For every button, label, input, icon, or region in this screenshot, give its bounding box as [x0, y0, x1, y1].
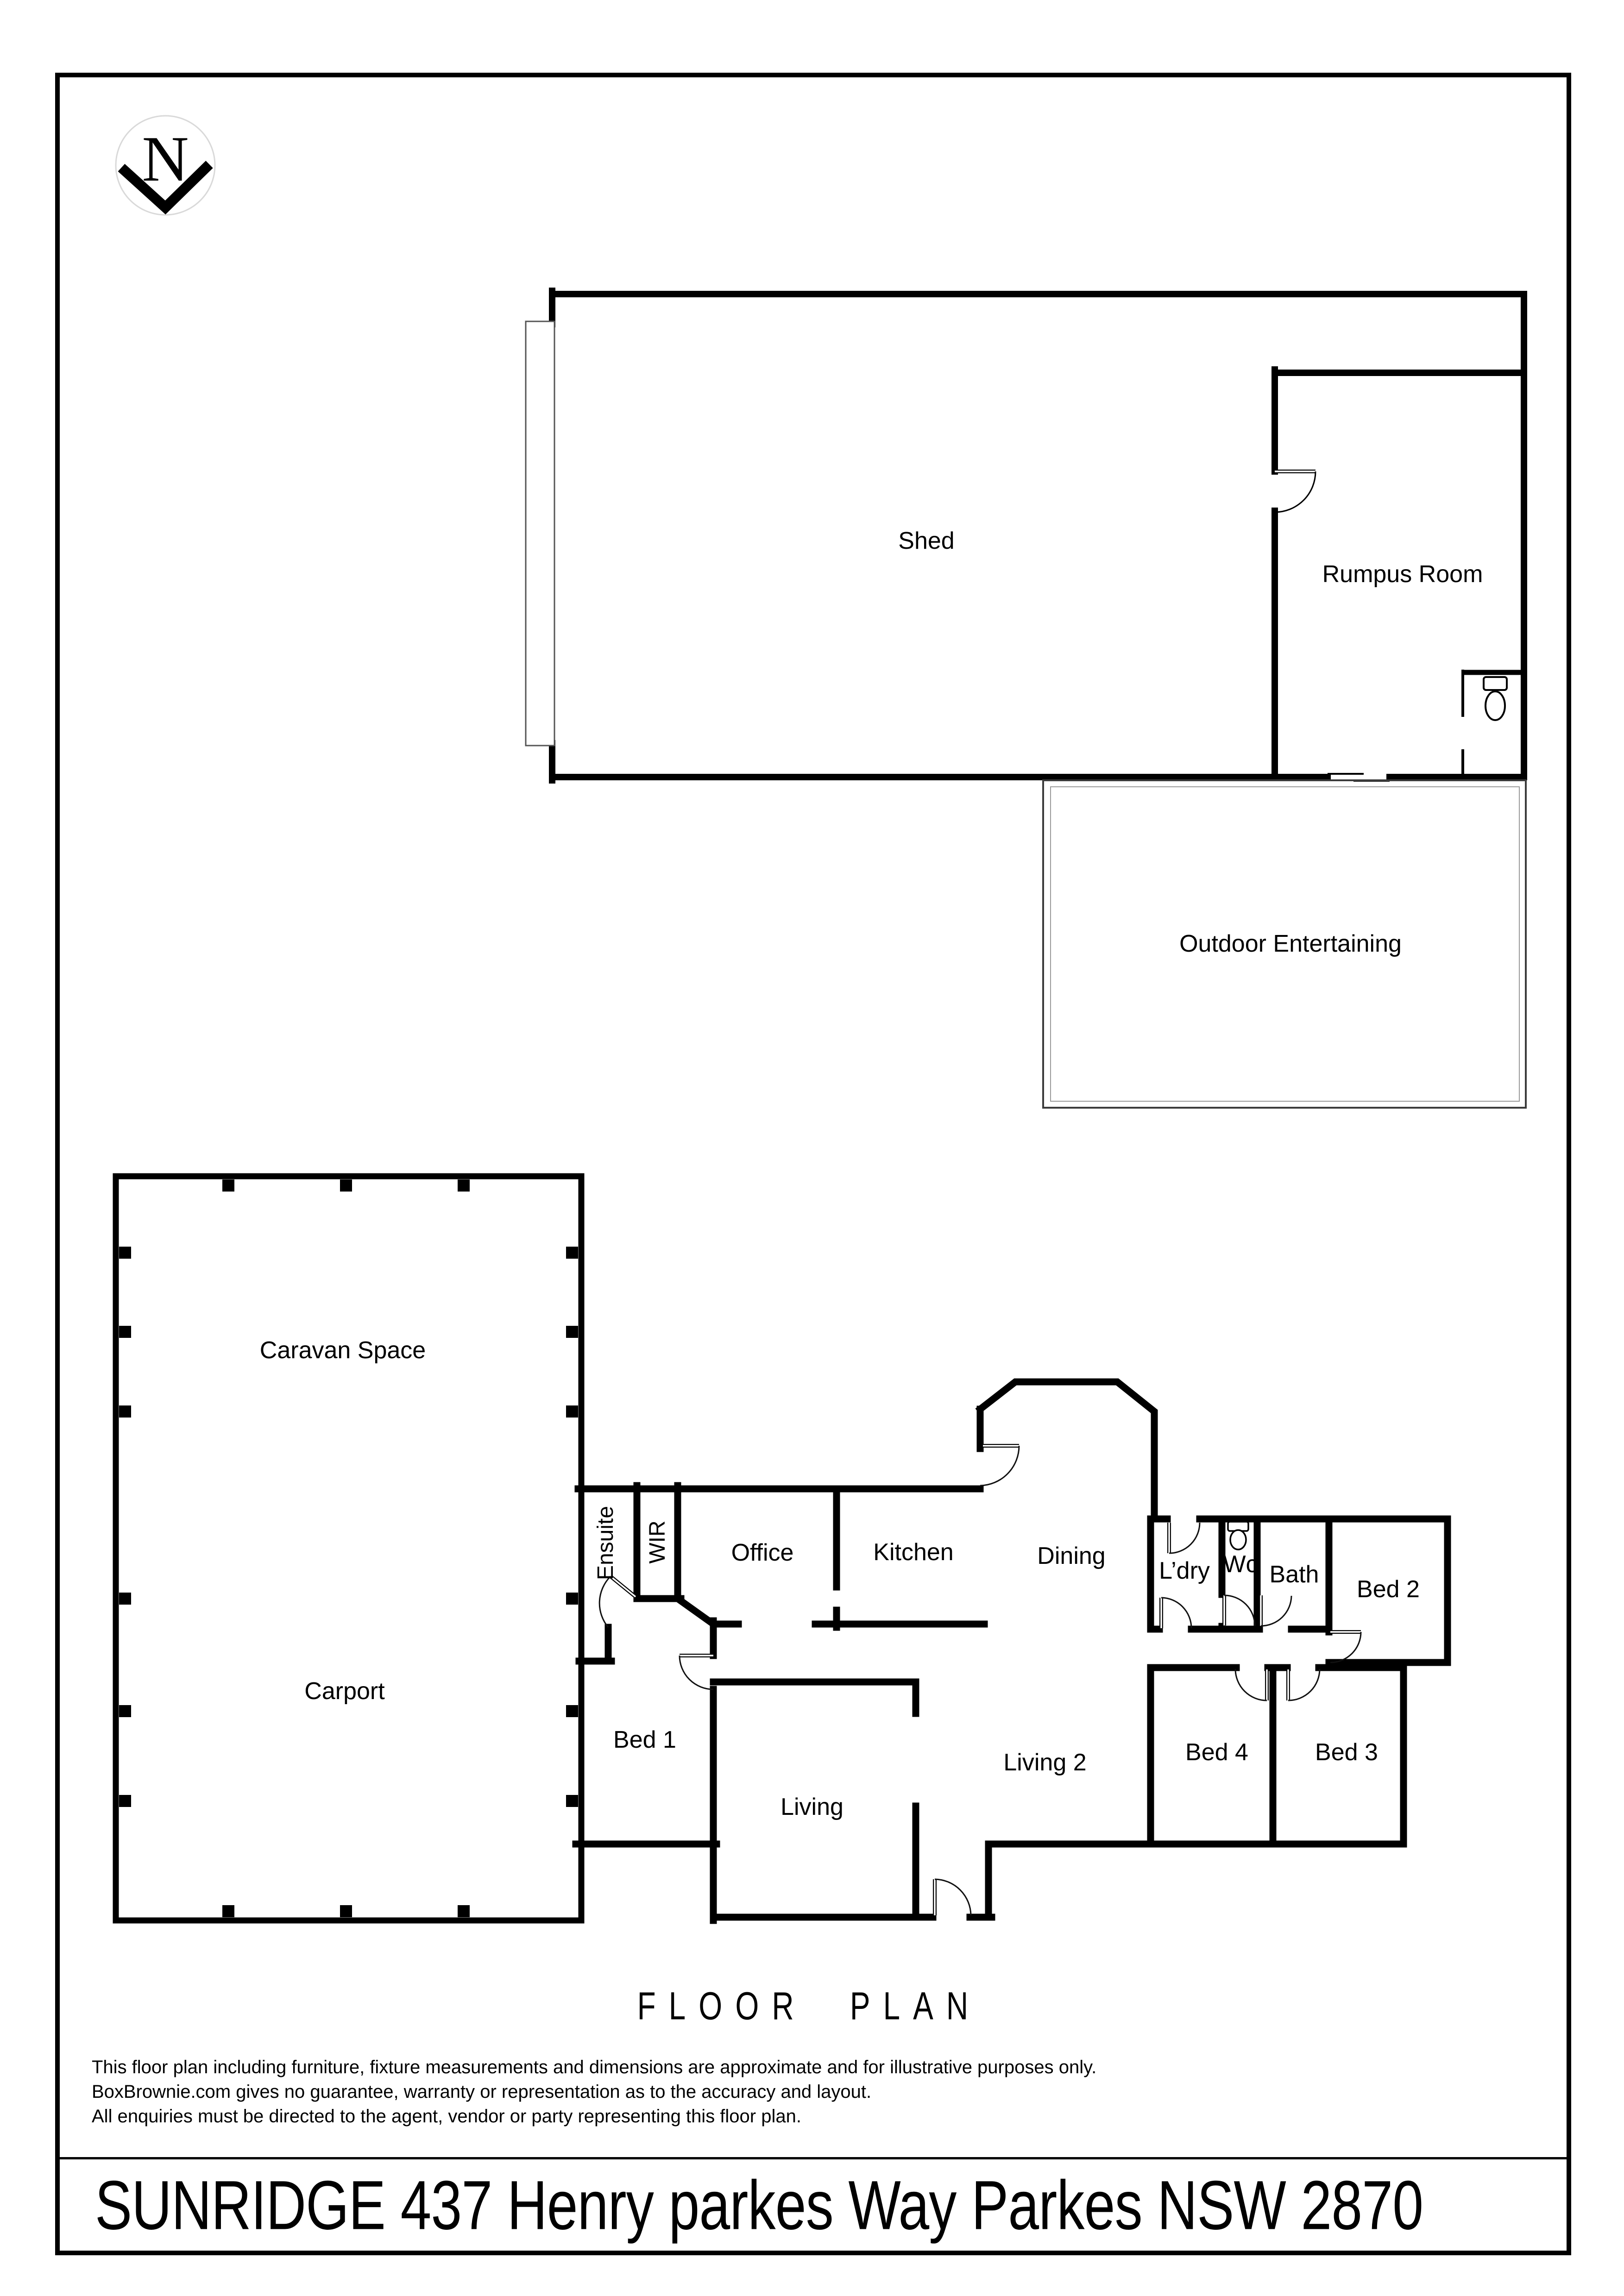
room-label-bed3: Bed 3 [1315, 1740, 1378, 1764]
room-label-caravan-space: Caravan Space [260, 1338, 426, 1362]
address-banner-text: SUNRIDGE 437 Henry parkes Way Parkes NSW… [95, 2165, 1423, 2246]
room-label-office: Office [731, 1541, 794, 1565]
address-banner-divider [55, 2157, 1571, 2159]
room-label-laundry: L’dry [1159, 1559, 1210, 1583]
toilet-icon [1228, 1522, 1248, 1549]
room-label-shed: Shed [898, 529, 954, 553]
floorplan-linework: N [0, 0, 1624, 2296]
room-label-bed4: Bed 4 [1185, 1740, 1248, 1764]
room-label-wc: Wc [1223, 1552, 1258, 1576]
room-label-living: Living [781, 1795, 843, 1819]
room-label-ensuite: Ensuite [595, 1506, 617, 1580]
room-label-wir: WIR [647, 1520, 669, 1563]
room-label-rumpus-room: Rumpus Room [1322, 562, 1483, 586]
carport-walls [116, 1176, 581, 1920]
house-walls [576, 1382, 1448, 1920]
disclaimer-text: This floor plan including furniture, fix… [92, 2055, 1096, 2129]
toilet-icon [1484, 677, 1507, 720]
room-label-living2: Living 2 [1003, 1750, 1086, 1775]
room-label-outdoor-entertaining: Outdoor Entertaining [1179, 932, 1402, 956]
room-label-bath: Bath [1270, 1562, 1319, 1587]
page-title: FLOOR PLAN [637, 1984, 982, 2029]
disclaimer-line-3: All enquiries must be directed to the ag… [92, 2104, 1096, 2129]
shed-roller-door [526, 321, 554, 746]
room-label-bed2: Bed 2 [1357, 1577, 1420, 1601]
room-label-carport: Carport [304, 1679, 384, 1703]
disclaimer-line-2: BoxBrownie.com gives no guarantee, warra… [92, 2080, 1096, 2104]
room-label-kitchen: Kitchen [873, 1540, 953, 1564]
room-label-bed1: Bed 1 [613, 1728, 676, 1752]
carport-posts [119, 1179, 578, 1917]
rumpus-door [1275, 471, 1316, 512]
north-letter: N [142, 123, 189, 195]
north-arrow-icon: N [116, 116, 215, 215]
shed-walls [552, 291, 1524, 780]
floorplan-page: N [0, 0, 1624, 2296]
disclaimer-line-1: This floor plan including furniture, fix… [92, 2055, 1096, 2080]
room-label-dining: Dining [1037, 1544, 1105, 1568]
